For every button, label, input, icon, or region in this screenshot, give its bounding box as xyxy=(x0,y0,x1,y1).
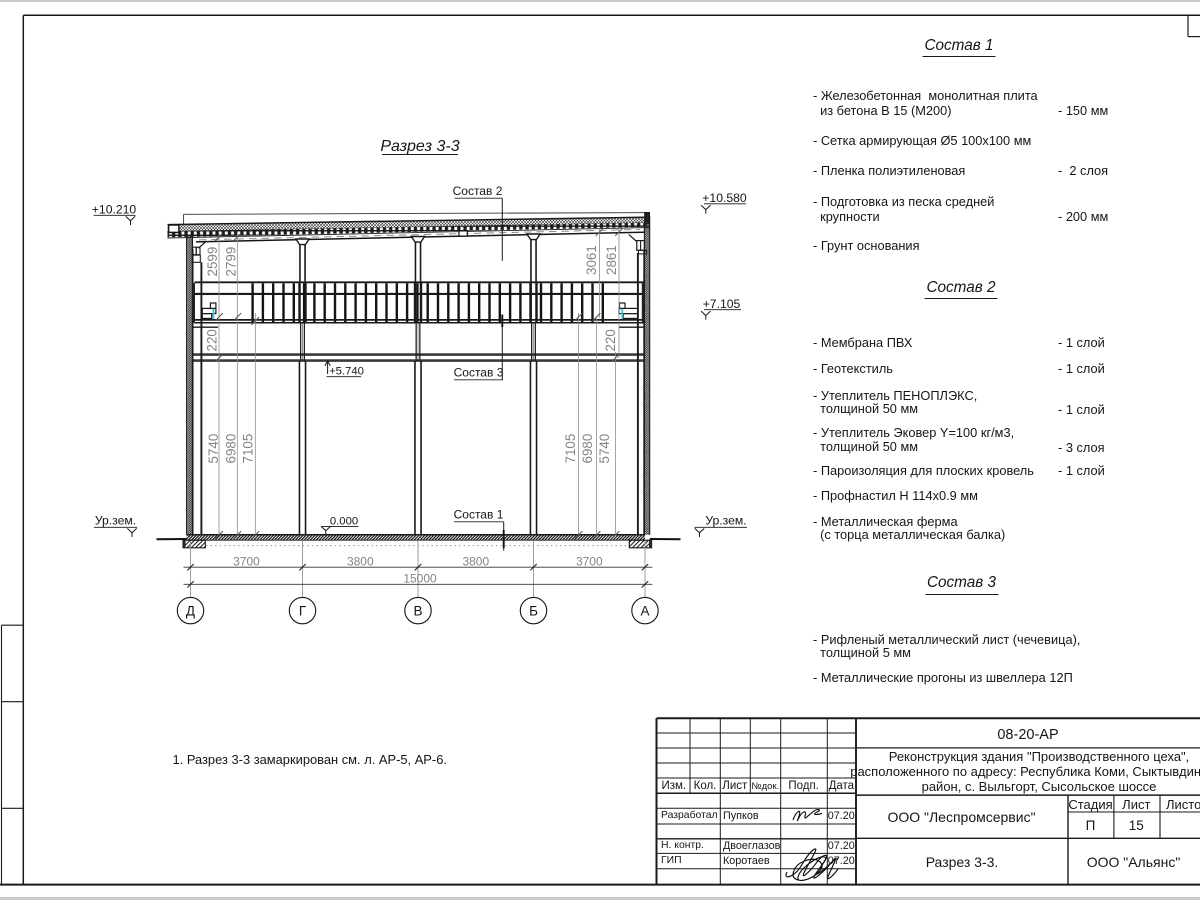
svg-text:7105: 7105 xyxy=(563,434,578,464)
svg-text:Г: Г xyxy=(299,603,307,618)
svg-text:220: 220 xyxy=(205,329,220,351)
svg-text:220: 220 xyxy=(603,329,618,351)
svg-text:5740: 5740 xyxy=(206,434,221,464)
svg-text:+10.580: +10.580 xyxy=(702,191,747,205)
svg-text:Д: Д xyxy=(186,603,195,618)
svg-text:+5.740: +5.740 xyxy=(329,365,364,377)
svg-text:7105: 7105 xyxy=(241,434,256,464)
svg-text:В: В xyxy=(413,603,422,618)
svg-text:3700: 3700 xyxy=(576,554,603,568)
svg-text:0.000: 0.000 xyxy=(330,515,358,527)
svg-text:+10.210: +10.210 xyxy=(92,202,137,216)
svg-text:Ур.зем.: Ур.зем. xyxy=(95,513,136,527)
svg-text:А: А xyxy=(640,603,649,618)
svg-text:+7.105: +7.105 xyxy=(703,297,741,311)
svg-text:5740: 5740 xyxy=(597,434,612,464)
svg-text:Состав 2: Состав 2 xyxy=(453,184,503,198)
svg-text:3700: 3700 xyxy=(233,554,260,568)
svg-text:2599: 2599 xyxy=(205,247,220,277)
svg-text:15000: 15000 xyxy=(403,571,437,585)
svg-text:6980: 6980 xyxy=(580,434,595,464)
svg-text:Ур.зем.: Ур.зем. xyxy=(705,513,746,527)
svg-text:Состав 1: Состав 1 xyxy=(454,507,504,521)
svg-text:2861: 2861 xyxy=(604,245,619,275)
svg-text:Состав 3: Состав 3 xyxy=(454,366,504,380)
svg-text:3800: 3800 xyxy=(347,554,374,568)
svg-text:3800: 3800 xyxy=(462,554,489,568)
svg-text:Б: Б xyxy=(529,603,538,618)
svg-text:3061: 3061 xyxy=(584,245,599,275)
svg-text:6980: 6980 xyxy=(224,434,239,464)
svg-text:2799: 2799 xyxy=(224,247,239,277)
